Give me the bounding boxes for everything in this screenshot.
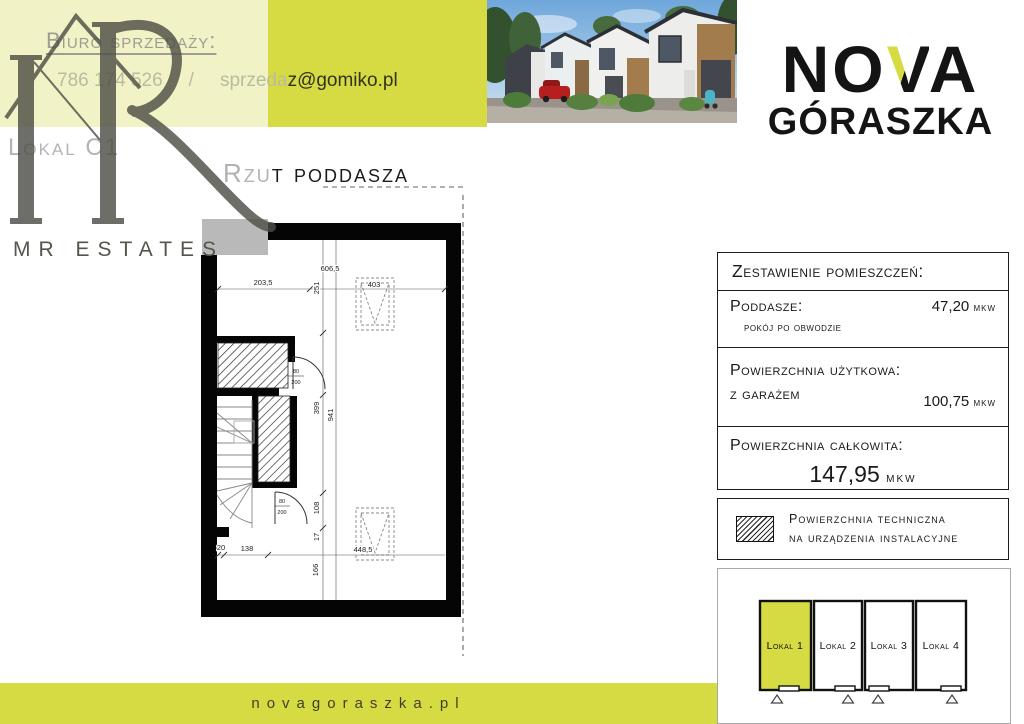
dim-width-left: 203,5: [254, 278, 273, 287]
door1-width: 80: [293, 369, 299, 375]
website-url: novagoraszka.pl: [251, 695, 465, 712]
development-photo: [487, 0, 737, 123]
summary-row-poddasze: Poddasze: pokój po obwodzie 47,20 mkw: [718, 291, 1008, 348]
summary-row-uzytkowa: Powierzchnia użytkowa: z garażem 100,75 …: [718, 348, 1008, 427]
legend-line1: Powierzchnia techniczna: [789, 510, 958, 529]
summary-header: Zestawienie pomieszczeń:: [718, 253, 1008, 291]
summary-row-calkowita: Powierzchnia całkowita: 147,95 mkw: [718, 427, 1008, 488]
brand-name: NOVA: [782, 40, 980, 99]
brand-v-accent: V: [887, 32, 929, 106]
minimap-label-lokal1: Lokal 1: [767, 640, 804, 652]
dim-height-total: 941: [326, 409, 335, 422]
door1-height: 200: [291, 380, 300, 386]
minimap-label-lokal4: Lokal 4: [923, 640, 960, 652]
dim-height-small: 17: [312, 533, 321, 541]
brand-subname: GÓRASZKA: [768, 101, 993, 144]
page-title: Rzut poddasza: [223, 158, 409, 189]
room-summary-table: Zestawienie pomieszczeń: Poddasze: pokój…: [717, 252, 1009, 490]
dim-bottom-left: 20: [217, 543, 225, 552]
nova-goraszka-logo: NOVA GÓRASZKA: [737, 16, 1024, 176]
minimap-label-lokal2: Lokal 2: [820, 640, 857, 652]
hatch-swatch-icon: [736, 516, 774, 542]
dim-height-mid: 108: [312, 502, 321, 515]
building-minimap: Lokal 1 Lokal 2 Lokal 3 Lokal 4: [717, 568, 1011, 724]
mr-estates-wordmark: MR ESTATES: [13, 238, 224, 262]
dim-window-bottom: 448,5: [354, 545, 373, 554]
footer-bar: novagoraszka.pl: [0, 683, 717, 724]
monogram-bars: [10, 22, 124, 224]
door2-height: 200: [277, 510, 286, 516]
dim-bottom-seg: 138: [241, 544, 254, 553]
legend-line2: na urządzenia instalacyjne: [789, 529, 958, 548]
stairs: [217, 400, 254, 528]
dim-window-top: 403: [368, 280, 381, 289]
minimap-label-lokal3: Lokal 3: [871, 640, 908, 652]
monogram-r-curve: [116, 25, 271, 227]
dim-height-upper: 399: [312, 402, 321, 415]
roof-windows: [356, 278, 394, 560]
dim-height-lower: 166: [311, 564, 320, 577]
roof-boundary-dashed: [323, 187, 463, 656]
dim-width-mid: 251: [312, 282, 321, 295]
technical-area-legend: Powierzchnia techniczna na urządzenia in…: [717, 498, 1009, 560]
dim-width-total: 606,5: [321, 264, 340, 273]
door2-width: 80: [279, 499, 285, 505]
bright-yellow-block: [268, 0, 487, 127]
mr-monogram-watermark: [0, 0, 300, 260]
